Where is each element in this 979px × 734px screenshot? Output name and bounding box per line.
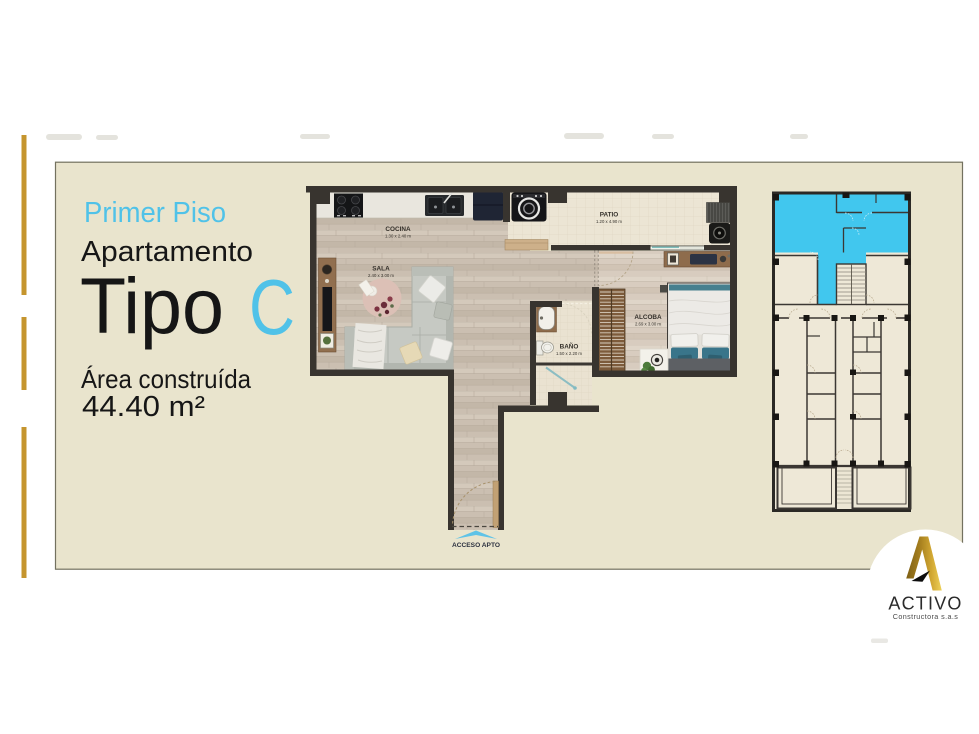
svg-text:ALCOBA: ALCOBA (634, 314, 662, 321)
svg-text:Tipo: Tipo (80, 261, 224, 350)
svg-text:2.40 x 3.00 m: 2.40 x 3.00 m (368, 273, 394, 278)
svg-text:44.40 m²: 44.40 m² (82, 391, 205, 423)
svg-text:Primer Piso: Primer Piso (84, 197, 226, 229)
svg-text:ACCESO APTO: ACCESO APTO (452, 542, 500, 549)
svg-text:ACTIVO: ACTIVO (888, 594, 962, 614)
svg-text:C: C (249, 263, 295, 351)
svg-text:SALA: SALA (372, 266, 390, 273)
svg-text:2.69 x 3.00 m: 2.69 x 3.00 m (635, 322, 661, 327)
svg-text:BAÑO: BAÑO (560, 342, 579, 351)
svg-text:1.50 x 2.20 m: 1.50 x 2.20 m (556, 351, 582, 356)
svg-text:1.30 x 2.40 m: 1.30 x 2.40 m (385, 234, 411, 239)
svg-text:COCINA: COCINA (385, 226, 411, 233)
svg-text:Área construída: Área construída (81, 364, 251, 394)
svg-text:Constructora s.a.s: Constructora s.a.s (893, 612, 959, 621)
svg-text:PATIO: PATIO (600, 212, 619, 219)
svg-text:1.20 x 4.90 m: 1.20 x 4.90 m (596, 219, 622, 224)
